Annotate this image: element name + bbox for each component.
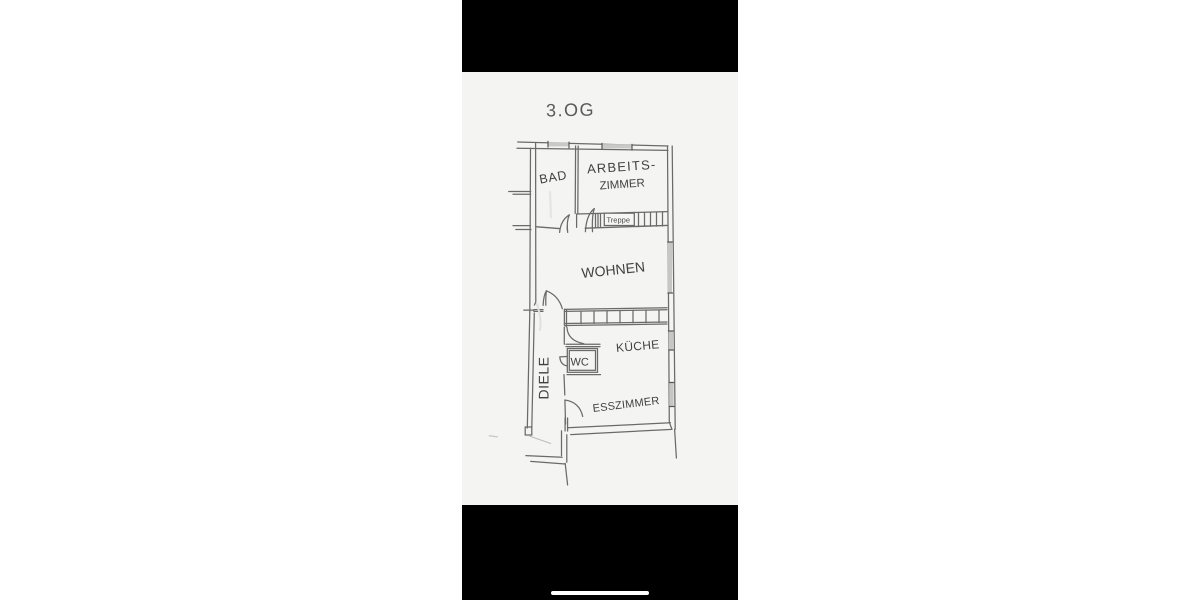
svg-text:ZIMMER: ZIMMER bbox=[599, 177, 645, 192]
svg-text:Treppe: Treppe bbox=[607, 216, 631, 225]
svg-text:3.OG: 3.OG bbox=[546, 100, 595, 121]
svg-text:ESSZIMMER: ESSZIMMER bbox=[592, 395, 660, 415]
svg-text:WOHNEN: WOHNEN bbox=[581, 258, 646, 281]
svg-text:BAD: BAD bbox=[538, 168, 568, 187]
svg-text:DIELE: DIELE bbox=[536, 357, 552, 400]
svg-text:WC: WC bbox=[571, 357, 589, 369]
svg-text:ARBEITS-: ARBEITS- bbox=[586, 157, 656, 177]
svg-text:KÜCHE: KÜCHE bbox=[615, 337, 660, 355]
